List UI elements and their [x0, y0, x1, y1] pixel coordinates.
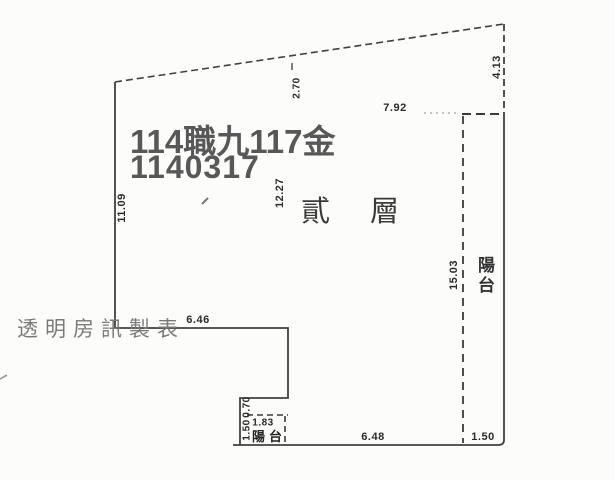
- watermark-date-number: 1140317: [130, 149, 260, 186]
- dimension-top-span: 7.92: [383, 102, 406, 114]
- scan-speck-left-edge: [0, 375, 7, 379]
- dimension-right-balcony-width: 1.50: [471, 431, 494, 443]
- dimension-left-wall: 11.09: [116, 193, 128, 222]
- dimension-left-step-width: 6.46: [186, 314, 209, 326]
- right-balcony-label: 陽台: [472, 256, 497, 296]
- bottom-balcony-label: 陽台: [252, 426, 286, 445]
- dimension-right-top: 4.13: [491, 55, 503, 78]
- floor-name-label: 貳層: [301, 188, 439, 230]
- watermark-agency-name: 透明房訊製表: [17, 313, 185, 343]
- dimension-top-drop: 2.70: [292, 77, 303, 98]
- dimension-right-balcony-length: 15.03: [448, 260, 460, 290]
- floor-plan-page: { "document": { "type": "scanned-floor-p…: [0, 0, 615, 480]
- dimension-notch-depth: 0.70: [242, 396, 253, 417]
- outline-top-sloped-edge: [115, 24, 504, 82]
- dimension-interior-height: 12.27: [274, 178, 286, 208]
- dimension-bottom-span: 6.48: [361, 431, 384, 443]
- scan-speck-center: [202, 198, 208, 204]
- floor-plan-drawing: [0, 0, 615, 480]
- dimension-notch-width: 1.83: [252, 418, 273, 429]
- dimension-notch-height: 1.50: [242, 419, 253, 440]
